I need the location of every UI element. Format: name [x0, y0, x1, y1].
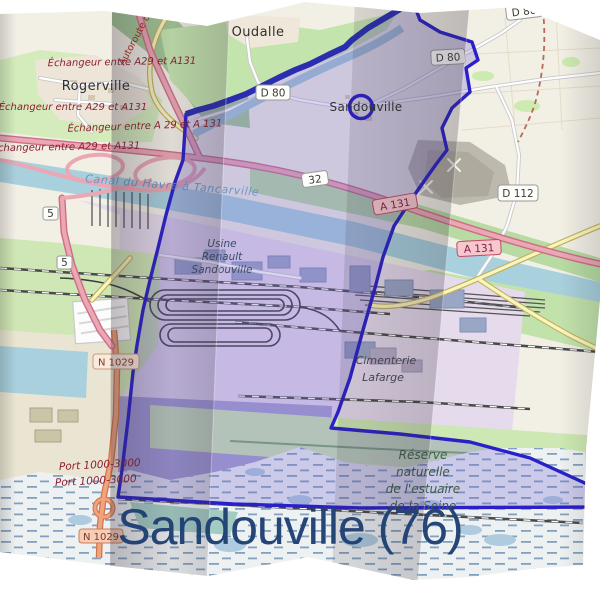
folded-paper-map: Rogerville Oudalle Sandouville Échangeur…: [0, 0, 600, 600]
exit-badge-5b: 5: [57, 256, 72, 269]
road-badge-d80-a-text: D 80: [261, 88, 286, 100]
road-badge-a131-b: A 131: [457, 239, 502, 256]
road-badge-d112: D 112: [498, 185, 538, 201]
place-label-oudalle: Oudalle: [232, 25, 285, 40]
exit-number-5a: 5: [47, 208, 54, 220]
screenshot-stage: Rogerville Oudalle Sandouville Échangeur…: [0, 0, 600, 600]
exit-badge-5a: 5: [43, 207, 58, 220]
exit-number-5b: 5: [61, 257, 68, 269]
road-badge-a131-b-text: A 131: [463, 242, 494, 256]
junction-badge-32-text: 32: [308, 173, 323, 187]
junction-badge-32: 32: [301, 170, 329, 187]
road-badge-d80-a: D 80: [256, 85, 290, 100]
map-canvas: Rogerville Oudalle Sandouville Échangeur…: [0, 0, 600, 600]
road-badge-d112-text: D 112: [502, 188, 533, 200]
